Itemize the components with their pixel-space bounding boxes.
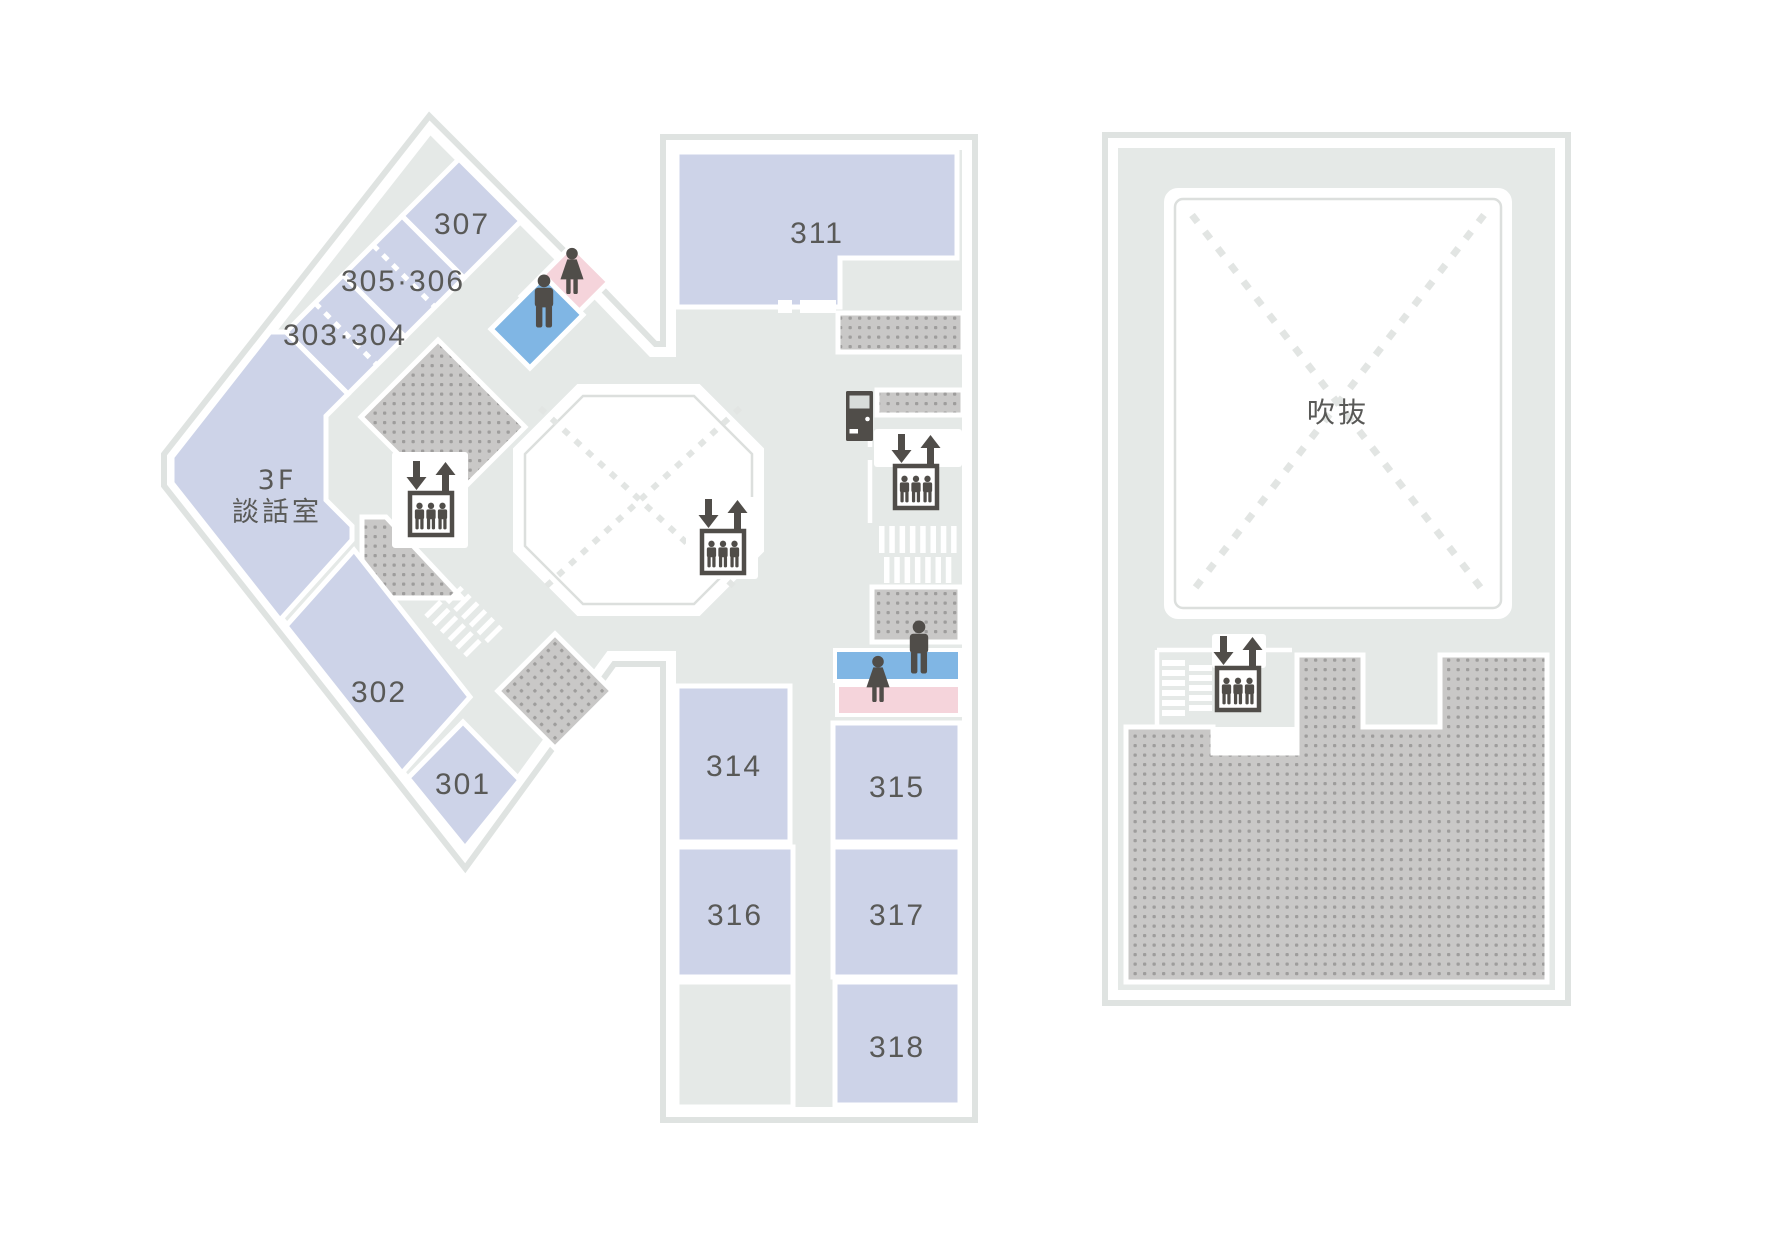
annex-building: 吹抜 — [1113, 143, 1560, 995]
mens-restroom-icon — [835, 650, 960, 681]
hatched-area — [877, 390, 963, 415]
room-305-306-label: 305·306 — [341, 265, 465, 298]
room-315-label: 315 — [869, 771, 925, 804]
atrium-label: 吹抜 — [1307, 396, 1369, 429]
main-building: 307 305·306 303·304 3F 談話室 302 301 311 3… — [172, 128, 967, 1112]
floor-plan-page: 307 305·306 303·304 3F 談話室 302 301 311 3… — [0, 0, 1785, 1260]
lounge-label-line2: 談話室 — [232, 497, 322, 528]
room-316-label: 316 — [707, 899, 763, 932]
vending-machine-icon — [846, 391, 873, 441]
hatched-area — [838, 313, 963, 352]
room-301-label: 301 — [435, 768, 491, 801]
room-303-304-label: 303·304 — [283, 319, 407, 352]
womens-restroom-icon — [837, 685, 960, 715]
door-notch — [800, 300, 836, 313]
elevator-icon — [392, 452, 468, 548]
hatched-area — [872, 587, 960, 642]
elevator-icon — [1212, 634, 1266, 710]
floor-plan-canvas: 307 305·306 303·304 3F 談話室 302 301 311 3… — [0, 0, 1785, 1260]
void-notch — [1213, 727, 1297, 753]
open-floor-area — [677, 982, 793, 1107]
room-307-label: 307 — [434, 208, 490, 241]
room-302-label: 302 — [351, 676, 407, 709]
elevator-icon — [686, 497, 758, 579]
room-314-label: 314 — [706, 750, 762, 783]
lounge-label-line1: 3F — [258, 465, 297, 496]
room-311-label: 311 — [790, 217, 844, 250]
room-317-label: 317 — [869, 899, 925, 932]
door-notch — [778, 300, 792, 313]
room-318-label: 318 — [869, 1031, 925, 1064]
